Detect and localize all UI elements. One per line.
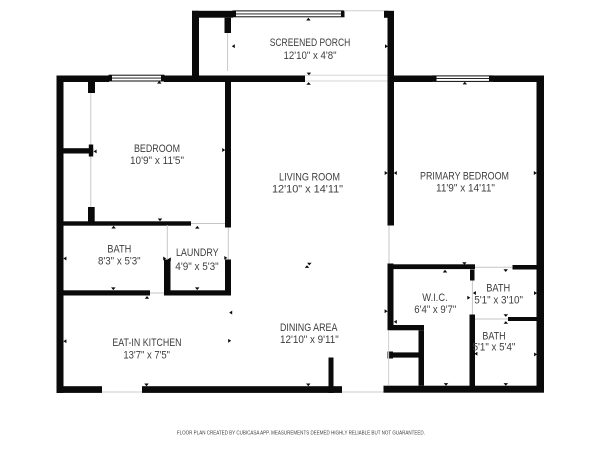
svg-text:FLOOR PLAN CREATED BY CUBICASA: FLOOR PLAN CREATED BY CUBICASA APP. MEAS…	[177, 430, 425, 436]
svg-text:6'4" x 9'7": 6'4" x 9'7"	[414, 304, 456, 316]
svg-text:11'9" x 14'11": 11'9" x 14'11"	[436, 182, 495, 194]
svg-text:DINING AREA: DINING AREA	[280, 322, 338, 334]
svg-text:12'10" x 4'8": 12'10" x 4'8"	[284, 50, 337, 62]
svg-text:4'9" x 5'3": 4'9" x 5'3"	[175, 261, 218, 273]
svg-text:10'9" x 11'5": 10'9" x 11'5"	[130, 155, 184, 167]
svg-text:LAUNDRY: LAUNDRY	[176, 247, 219, 259]
svg-text:13'7" x 7'5": 13'7" x 7'5"	[123, 350, 170, 362]
svg-text:BEDROOM: BEDROOM	[134, 143, 180, 155]
svg-text:12'10" x 9'11": 12'10" x 9'11"	[280, 334, 339, 346]
svg-text:LIVING ROOM: LIVING ROOM	[279, 171, 340, 183]
svg-text:5'1" x 5'4": 5'1" x 5'4"	[473, 342, 516, 354]
svg-text:W.I.C.: W.I.C.	[422, 292, 447, 304]
svg-text:BATH: BATH	[107, 244, 131, 256]
svg-text:SCREENED PORCH: SCREENED PORCH	[270, 37, 351, 49]
svg-text:8'3" x 5'3": 8'3" x 5'3"	[98, 256, 141, 268]
svg-text:5'1" x 3'10": 5'1" x 3'10"	[474, 295, 523, 307]
svg-text:EAT-IN KITCHEN: EAT-IN KITCHEN	[112, 337, 181, 349]
svg-text:BATH: BATH	[482, 330, 505, 342]
svg-text:PRIMARY BEDROOM: PRIMARY BEDROOM	[420, 170, 509, 182]
svg-text:12'10" x 14'11": 12'10" x 14'11"	[272, 183, 343, 195]
svg-text:BATH: BATH	[486, 283, 510, 295]
